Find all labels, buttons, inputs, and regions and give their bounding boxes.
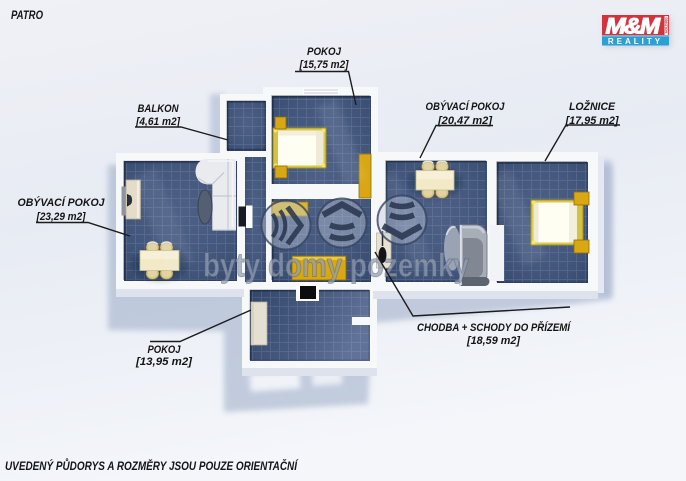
svg-text:[4,61 m2]: [4,61 m2] [135, 116, 180, 128]
svg-text:OBÝVACÍ POKOJ: OBÝVACÍ POKOJ [18, 196, 106, 209]
svg-text:BALKON: BALKON [138, 103, 180, 115]
svg-text:REALITY: REALITY [608, 37, 663, 46]
svg-text:POKOJ: POKOJ [307, 46, 342, 58]
svg-text:CHODBA + SCHODY DO PŘÍZEMÍ: CHODBA + SCHODY DO PŘÍZEMÍ [417, 321, 572, 334]
svg-text:UVEDENÝ PŮDORYS A ROZMĚRY JSOU: UVEDENÝ PŮDORYS A ROZMĚRY JSOU POUZE ORI… [5, 459, 299, 473]
svg-text:[23,29 m2]: [23,29 m2] [36, 211, 86, 223]
svg-text:[13,95 m2]: [13,95 m2] [135, 356, 192, 368]
svg-text:OBÝVACÍ POKOJ: OBÝVACÍ POKOJ [426, 100, 506, 113]
svg-text:LOŽNICE: LOŽNICE [569, 100, 616, 113]
svg-text:M&M: M&M [606, 14, 661, 39]
svg-text:[15,75 m2]: [15,75 m2] [299, 59, 349, 71]
svg-text:byty domy pozemky: byty domy pozemky [203, 248, 469, 285]
svg-text:PATRO: PATRO [11, 8, 43, 22]
svg-text:[18,59 m2]: [18,59 m2] [466, 335, 520, 347]
svg-text:HOLDING: HOLDING [665, 17, 669, 33]
svg-text:POKOJ: POKOJ [148, 344, 182, 356]
